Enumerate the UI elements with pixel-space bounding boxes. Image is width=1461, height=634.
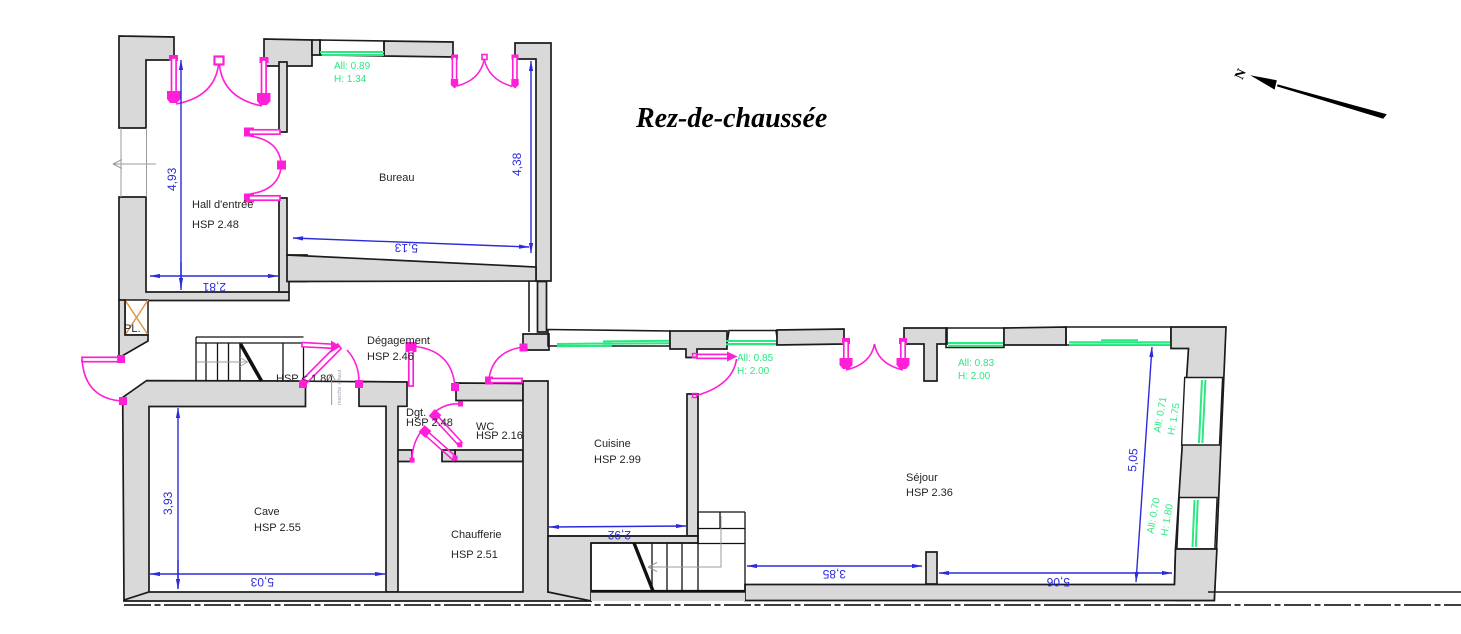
svg-text:All: 0.89: All: 0.89: [334, 61, 371, 72]
svg-text:Dégagement: Dégagement: [367, 335, 430, 347]
svg-text:HSP 2.99: HSP 2.99: [594, 454, 641, 466]
svg-text:2,92: 2,92: [607, 528, 631, 542]
svg-text:HSP 2.51: HSP 2.51: [451, 549, 498, 561]
svg-text:PL.: PL.: [124, 323, 141, 335]
svg-text:All: 0.85: All: 0.85: [737, 353, 774, 364]
svg-text:Chaufferie: Chaufferie: [451, 529, 502, 541]
svg-text:2,81: 2,81: [202, 280, 226, 294]
svg-text:3,93: 3,93: [161, 491, 175, 515]
svg-text:5,05: 5,05: [1125, 448, 1141, 473]
svg-text:HSP 2.46: HSP 2.46: [367, 351, 414, 363]
svg-text:4,38: 4,38: [510, 152, 524, 176]
svg-text:3,85: 3,85: [822, 567, 846, 581]
svg-text:4,93: 4,93: [165, 167, 179, 191]
svg-text:HSP 2.48: HSP 2.48: [192, 219, 239, 231]
svg-text:Rez-de-chaussée: Rez-de-chaussée: [635, 103, 827, 134]
svg-text:H: 1.34: H: 1.34: [334, 74, 367, 85]
svg-text:H: 2.00: H: 2.00: [958, 371, 991, 382]
svg-text:Cuisine: Cuisine: [594, 438, 631, 450]
svg-text:marche + haut: marche + haut: [337, 369, 343, 405]
svg-text:H: 2.00: H: 2.00: [737, 366, 770, 377]
svg-text:HSP 2.48: HSP 2.48: [406, 417, 453, 429]
svg-text:Hall d'entrée: Hall d'entrée: [192, 199, 253, 211]
svg-text:HSP 2.55: HSP 2.55: [254, 522, 301, 534]
svg-text:All: 0.83: All: 0.83: [958, 358, 995, 369]
svg-text:Cave: Cave: [254, 506, 280, 518]
svg-text:Séjour: Séjour: [906, 472, 938, 484]
svg-text:5,03: 5,03: [250, 575, 274, 589]
svg-text:HSP < 1.80: HSP < 1.80: [276, 373, 332, 385]
svg-text:Bureau: Bureau: [379, 172, 414, 184]
svg-text:5,06: 5,06: [1046, 575, 1070, 589]
svg-text:HSP 2.16: HSP 2.16: [476, 430, 523, 442]
svg-text:HSP 2.36: HSP 2.36: [906, 487, 953, 499]
svg-text:5,13: 5,13: [394, 241, 418, 256]
